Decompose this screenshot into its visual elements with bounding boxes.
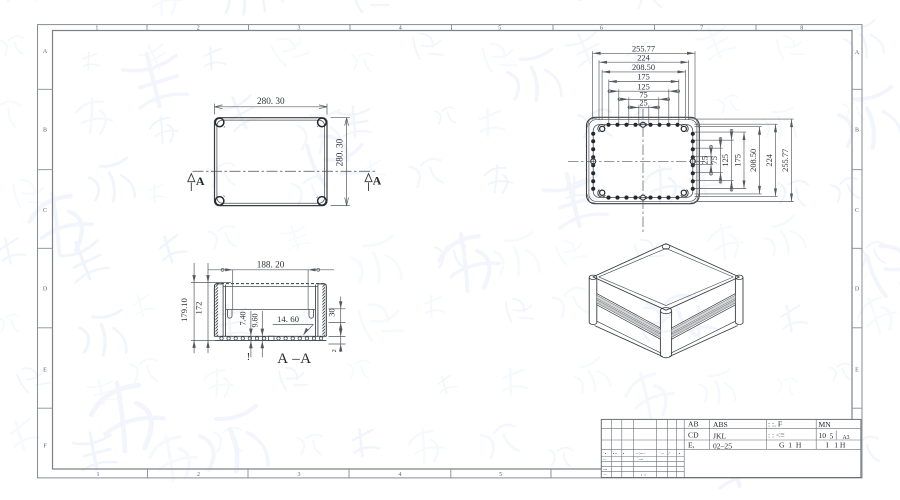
svg-text:224: 224	[637, 53, 650, 62]
svg-text:I 1 H: I 1 H	[826, 441, 846, 450]
svg-text:7: 7	[700, 26, 703, 32]
svg-text:B: B	[43, 128, 47, 134]
svg-text:255.77: 255.77	[781, 149, 790, 172]
svg-text:A: A	[43, 49, 48, 55]
svg-text:∼·: ∼·	[603, 458, 607, 462]
svg-text:1: 1	[95, 26, 98, 32]
svg-text:3: 3	[298, 472, 301, 478]
svg-text:∼▪: ∼▪	[603, 468, 608, 472]
svg-text:D: D	[43, 287, 48, 293]
svg-text:175: 175	[637, 73, 650, 82]
svg-text:B: B	[855, 128, 859, 134]
svg-text:CD: CD	[688, 430, 699, 439]
svg-text:280. 30: 280. 30	[335, 138, 345, 166]
svg-text:02–25: 02–25	[713, 442, 732, 451]
svg-text:: :. F: : :. F	[768, 419, 782, 428]
svg-text:A: A	[373, 174, 382, 188]
svg-text:280. 30: 280. 30	[257, 96, 285, 106]
svg-text:D: D	[855, 287, 860, 293]
svg-text:172: 172	[194, 302, 204, 315]
svg-text:A –A: A –A	[277, 351, 312, 367]
svg-text:3: 3	[298, 26, 301, 32]
svg-text:14. 60: 14. 60	[277, 314, 300, 324]
svg-text:‾∼▪: ‾∼▪	[636, 458, 643, 462]
svg-text:▪ ˈ: ▪ ˈ	[623, 451, 627, 455]
svg-text:ˈ ∼: ˈ ∼	[659, 451, 665, 455]
svg-text:MN: MN	[819, 420, 832, 429]
svg-text:10: 10	[819, 431, 827, 440]
svg-text:2: 2	[332, 349, 338, 352]
svg-text:25: 25	[639, 99, 647, 108]
svg-text:5: 5	[498, 26, 501, 32]
svg-text:9.60: 9.60	[251, 314, 260, 328]
svg-text:224: 224	[765, 153, 774, 166]
svg-text:188. 20: 188. 20	[257, 259, 285, 269]
svg-text:AB: AB	[688, 420, 699, 429]
svg-text:ABS: ABS	[713, 420, 728, 429]
svg-text:2: 2	[197, 26, 200, 32]
svg-text:: : <≡: : : <≡	[768, 431, 785, 440]
svg-text:F: F	[43, 444, 47, 450]
svg-text:A: A	[196, 174, 205, 188]
svg-text:125: 125	[721, 154, 730, 167]
svg-text:4: 4	[399, 472, 402, 478]
svg-text:2: 2	[197, 472, 200, 478]
svg-text:5: 5	[830, 431, 834, 440]
svg-text:179.10: 179.10	[179, 298, 189, 322]
svg-text:▪ ▪: ▪ ▪	[641, 473, 646, 477]
svg-text:C: C	[855, 208, 859, 214]
svg-text:JKL: JKL	[713, 431, 726, 440]
svg-text:8: 8	[800, 26, 803, 32]
svg-text:G 1 H: G 1 H	[779, 440, 802, 449]
svg-text:7.40: 7.40	[239, 312, 248, 326]
svg-text:E: E	[43, 368, 47, 374]
svg-text:255.77: 255.77	[632, 44, 655, 53]
svg-text:C: C	[43, 208, 47, 214]
svg-text:!: !	[247, 351, 251, 363]
svg-text:E,: E,	[688, 441, 695, 450]
svg-text:5: 5	[499, 472, 502, 478]
svg-text:∼○▪∼ˈ: ∼○▪∼ˈ	[635, 451, 646, 455]
svg-text:6: 6	[600, 26, 603, 32]
svg-text:25: 25	[701, 156, 710, 164]
svg-text:30: 30	[327, 308, 337, 317]
svg-text:4: 4	[399, 26, 402, 32]
svg-text:75: 75	[710, 156, 719, 164]
svg-text:ˈ ▪: ˈ ▪	[603, 451, 607, 455]
svg-text:▪ ▪: ▪ ▪	[613, 451, 617, 455]
svg-text:1: 1	[97, 472, 100, 478]
svg-text:·∼: ·∼	[603, 473, 607, 477]
svg-text:175: 175	[734, 154, 743, 167]
svg-text:E: E	[855, 368, 859, 374]
svg-text:208.50: 208.50	[632, 63, 655, 72]
svg-text:A: A	[855, 50, 860, 56]
svg-text:208.50: 208.50	[749, 149, 758, 172]
